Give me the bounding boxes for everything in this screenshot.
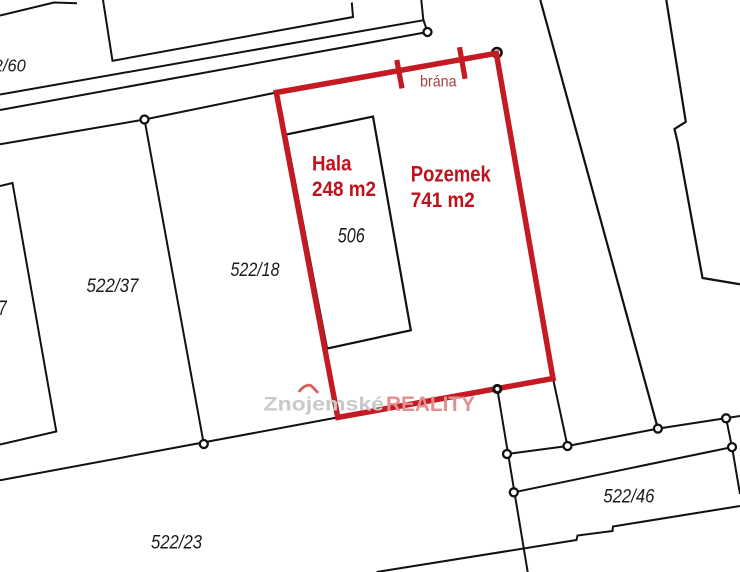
svg-text:2/60: 2/60 [0,56,26,76]
svg-text:741 m2: 741 m2 [411,189,475,212]
svg-text:248 m2: 248 m2 [312,178,376,201]
svg-text:522/37: 522/37 [87,276,140,297]
svg-text:522/23: 522/23 [151,533,202,554]
svg-text:506: 506 [338,224,365,248]
svg-text:522/18: 522/18 [231,260,280,281]
svg-text:7: 7 [0,297,8,320]
svg-text:REALITY: REALITY [386,393,475,416]
svg-text:Pozemek: Pozemek [411,162,491,187]
svg-text:522/46: 522/46 [603,486,654,507]
svg-text:Hala: Hala [312,153,352,176]
svg-text:brána: brána [420,74,457,91]
svg-text:Znojemské: Znojemské [264,394,385,416]
